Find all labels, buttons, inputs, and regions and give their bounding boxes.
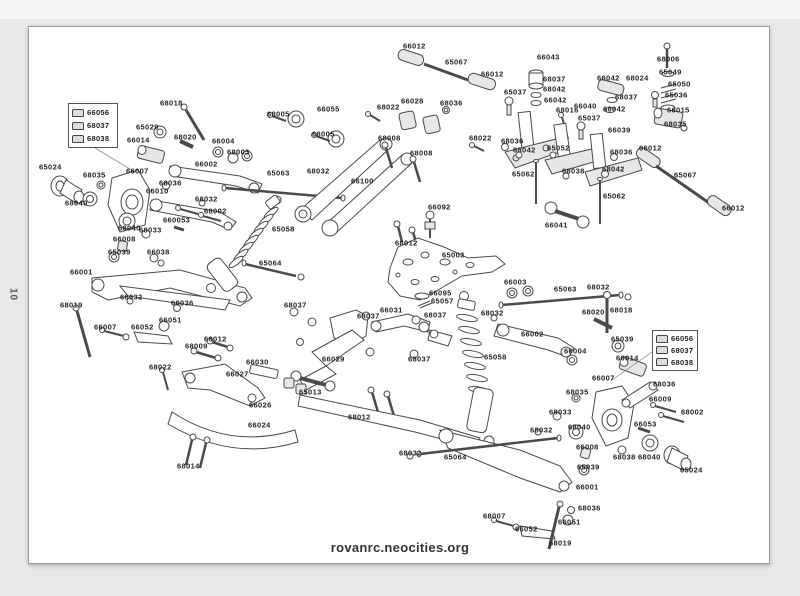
legend-row: 66056 (72, 108, 114, 117)
part-label: 68038 (613, 453, 636, 462)
front-arm-skid (160, 338, 307, 468)
part-label: 66009 (649, 395, 672, 404)
part-label: 66002 (195, 160, 218, 169)
legend-row: 68038 (656, 358, 694, 367)
part-label: 68002 (681, 408, 704, 417)
part-label: 68033 (549, 408, 572, 417)
part-label: 68012 (204, 335, 227, 344)
legend-row: 68037 (72, 121, 114, 130)
part-label: 68038 (562, 167, 585, 176)
legend-row: 68038 (72, 134, 114, 143)
legend-label: 66056 (87, 108, 109, 117)
legend-box: 660566803768038 (652, 330, 698, 371)
part-label: 65024 (39, 163, 62, 172)
part-label: 68024 (626, 74, 649, 83)
part-label: 68036 (501, 137, 524, 146)
part-label: 65024 (680, 466, 703, 475)
part-label: 68014 (177, 462, 200, 471)
part-label: 66042 (597, 74, 620, 83)
legend-label: 68038 (87, 134, 109, 143)
part-label: 66029 (322, 355, 345, 364)
part-label: 68007 (483, 512, 506, 521)
legend-label: 68037 (671, 346, 693, 355)
part-label: 66012 (481, 70, 504, 79)
part-label: 66001 (70, 268, 93, 277)
part-label: 68036 (653, 380, 676, 389)
part-label: 66001 (576, 483, 599, 492)
part-label: 68022 (149, 363, 172, 372)
part-label: 68008 (378, 134, 401, 143)
part-label: 68035 (566, 388, 589, 397)
part-label: 68036 (578, 504, 601, 513)
part-label: 68018 (160, 99, 183, 108)
part-label: 68032 (530, 426, 553, 435)
part-label: 66053 (634, 420, 657, 429)
part-label: 65062 (512, 170, 535, 179)
part-label: 65062 (603, 192, 626, 201)
part-label: 66028 (401, 97, 424, 106)
part-label: 66012 (639, 144, 662, 153)
part-label: 66012 (403, 42, 426, 51)
part-label: 68020 (174, 133, 197, 142)
part-label: 66039 (608, 126, 631, 135)
legend-label: 68038 (671, 358, 693, 367)
part-label: 66015 (667, 106, 690, 115)
part-label: 65003 (442, 251, 465, 260)
part-label: 68005 (267, 110, 290, 119)
legend-label: 68037 (87, 121, 109, 130)
part-label: 68037 (357, 312, 380, 321)
part-label: 66014 (127, 136, 150, 145)
legend-box: 660566803768038 (68, 103, 118, 148)
part-label: 68032 (120, 293, 143, 302)
part-label: 68036 (171, 299, 194, 308)
part-label: 66042 (544, 96, 567, 105)
part-label: 66003 (504, 278, 527, 287)
part-label: 66030 (246, 358, 269, 367)
part-label: 68012 (395, 239, 418, 248)
part-label: 66007 (126, 167, 149, 176)
body-clip-large-icon (72, 109, 84, 117)
part-label: 68035 (83, 171, 106, 180)
part-label: 68020 (582, 308, 605, 317)
part-label: 68037 (284, 301, 307, 310)
part-label: 65064 (259, 259, 282, 268)
part-label: 68005 (312, 130, 335, 139)
part-label: 66027 (226, 370, 249, 379)
body-clip-medium-icon (656, 346, 668, 354)
part-label: 66008 (113, 235, 136, 244)
part-label: 68032 (195, 195, 218, 204)
legend-row: 68037 (656, 346, 694, 355)
part-label: 65029 (136, 123, 159, 132)
part-label: 66055 (317, 105, 340, 114)
part-label: 66010 (146, 187, 169, 196)
part-label: 66052 (515, 525, 538, 534)
part-label: 66092 (428, 203, 451, 212)
part-label: 68035 (664, 120, 687, 129)
part-label: 68018 (610, 306, 633, 315)
lower-arm-rear-right (298, 395, 591, 549)
part-label: 66004 (212, 137, 235, 146)
part-label: 68033 (139, 226, 162, 235)
part-label: 68032 (481, 309, 504, 318)
rear-right-suspension (491, 286, 647, 402)
part-label: 66002 (521, 330, 544, 339)
part-label: 68022 (377, 103, 400, 112)
part-label: 68040 (568, 423, 591, 432)
part-label: 68032 (307, 167, 330, 176)
part-label: 66043 (537, 53, 560, 62)
part-label: 68042 (513, 146, 536, 155)
part-label: 65052 (547, 144, 570, 153)
part-label: 68003 (227, 148, 250, 157)
part-label: 68019 (60, 301, 83, 310)
body-clip-small-icon (656, 358, 668, 366)
part-label: 66040 (574, 102, 597, 111)
part-label: 68040 (638, 453, 661, 462)
part-label: 68032 (587, 283, 610, 292)
part-label: 68037 (543, 75, 566, 84)
part-label: 68008 (410, 149, 433, 158)
part-label: 66026 (249, 401, 272, 410)
body-clip-medium-icon (72, 122, 84, 130)
part-label: 65050 (668, 80, 691, 89)
part-label: 65037 (504, 88, 527, 97)
part-label: 65067 (674, 171, 697, 180)
part-label: 65063 (267, 169, 290, 178)
part-label: 68040 (118, 224, 141, 233)
part-label: 68037 (408, 355, 431, 364)
part-label: 68012 (348, 413, 371, 422)
part-label: 66038 (147, 248, 170, 257)
part-label: 65037 (578, 114, 601, 123)
part-label: 68032 (399, 449, 422, 458)
part-label: 65058 (272, 225, 295, 234)
page-number: 10 (8, 283, 19, 307)
legend-label: 66056 (671, 334, 693, 343)
part-label: 66012 (722, 204, 745, 213)
part-label: 68042 (603, 105, 626, 114)
part-label: 68036 (610, 148, 633, 157)
part-label: 68040 (65, 199, 88, 208)
part-label: 65036 (665, 91, 688, 100)
part-label: 68002 (204, 207, 227, 216)
part-label: 65063 (554, 285, 577, 294)
part-label: 66031 (380, 306, 403, 315)
part-label: 68042 (543, 85, 566, 94)
part-label: 65064 (444, 453, 467, 462)
part-label: 66051 (558, 518, 581, 527)
part-label: 66100 (351, 177, 374, 186)
part-label: 660053 (163, 216, 190, 225)
part-label: 68006 (657, 55, 680, 64)
part-label: 65013 (299, 388, 322, 397)
part-label: 65039 (611, 335, 634, 344)
part-label: 66041 (545, 221, 568, 230)
part-label: 68022 (469, 134, 492, 143)
part-label: 68036 (440, 99, 463, 108)
part-label: 68037 (615, 93, 638, 102)
part-label: 65067 (445, 58, 468, 67)
part-label: 65057 (431, 297, 454, 306)
body-clip-large-icon (656, 335, 668, 343)
part-label: 66007 (94, 323, 117, 332)
part-label: 66014 (616, 354, 639, 363)
part-label: 66008 (576, 443, 599, 452)
part-label: 66051 (159, 316, 182, 325)
part-label: 65058 (484, 353, 507, 362)
legend-row: 66056 (656, 334, 694, 343)
part-label: 66004 (564, 347, 587, 356)
website-footer: rovanrc.neocities.org (0, 540, 800, 555)
body-clip-small-icon (72, 135, 84, 143)
part-label: 65039 (108, 248, 131, 257)
part-label: 68037 (424, 311, 447, 320)
part-label: 66007 (592, 374, 615, 383)
part-label: 68042 (602, 165, 625, 174)
part-label: 65039 (577, 463, 600, 472)
part-label: 66052 (131, 323, 154, 332)
part-label: 65049 (659, 68, 682, 77)
drive-shaft-right (634, 146, 733, 218)
part-label: 66024 (248, 421, 271, 430)
